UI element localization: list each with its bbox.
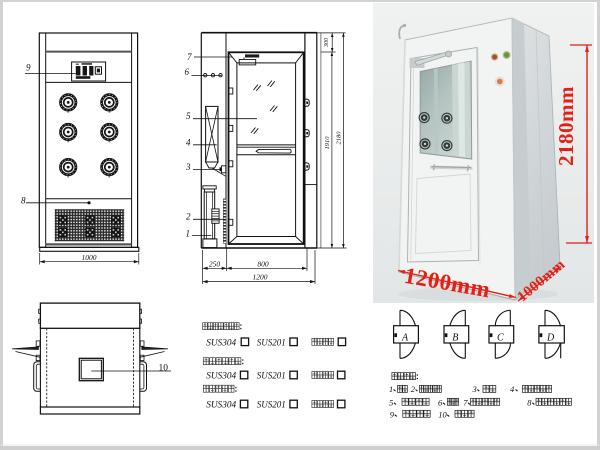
svg-text:10: 10	[159, 364, 169, 374]
svg-text:9: 9	[26, 63, 31, 73]
svg-text:300: 300	[323, 37, 330, 48]
svg-text:2: 2	[186, 212, 191, 222]
svg-text:1000: 1000	[82, 253, 97, 262]
svg-text:1: 1	[389, 384, 393, 394]
svg-text:B: B	[452, 333, 458, 344]
svg-text:7: 7	[463, 397, 468, 407]
svg-text:D: D	[546, 333, 555, 344]
svg-text:7: 7	[187, 52, 192, 62]
svg-text:3: 3	[472, 384, 477, 394]
svg-text:4: 4	[186, 138, 191, 148]
svg-text:9: 9	[390, 409, 395, 419]
svg-text:SUS304: SUS304	[206, 338, 236, 348]
svg-text:1910: 1910	[324, 136, 331, 150]
svg-text:SUS201: SUS201	[257, 371, 286, 381]
svg-text:6: 6	[438, 397, 443, 407]
svg-text:SUS304: SUS304	[206, 400, 236, 410]
svg-text:SUS201: SUS201	[257, 400, 286, 410]
svg-text:C: C	[497, 333, 504, 344]
svg-text:800: 800	[257, 259, 269, 268]
svg-text:4: 4	[510, 384, 515, 394]
svg-text:1200: 1200	[253, 273, 268, 282]
svg-text:1: 1	[186, 229, 191, 239]
svg-text:SUS201: SUS201	[257, 338, 286, 348]
svg-text:SUS304: SUS304	[206, 371, 236, 381]
svg-text:10: 10	[438, 409, 447, 419]
svg-text:2180: 2180	[336, 131, 343, 145]
svg-text:8: 8	[527, 397, 532, 407]
svg-text:250: 250	[209, 259, 221, 268]
svg-text:5: 5	[389, 397, 393, 407]
svg-text:8: 8	[21, 196, 26, 206]
svg-text:2: 2	[411, 384, 416, 394]
svg-text:5: 5	[186, 111, 191, 121]
svg-text:6: 6	[185, 67, 190, 77]
svg-text:3: 3	[185, 162, 191, 172]
svg-text:2180mm: 2180mm	[554, 86, 578, 166]
svg-text:A: A	[401, 333, 409, 344]
